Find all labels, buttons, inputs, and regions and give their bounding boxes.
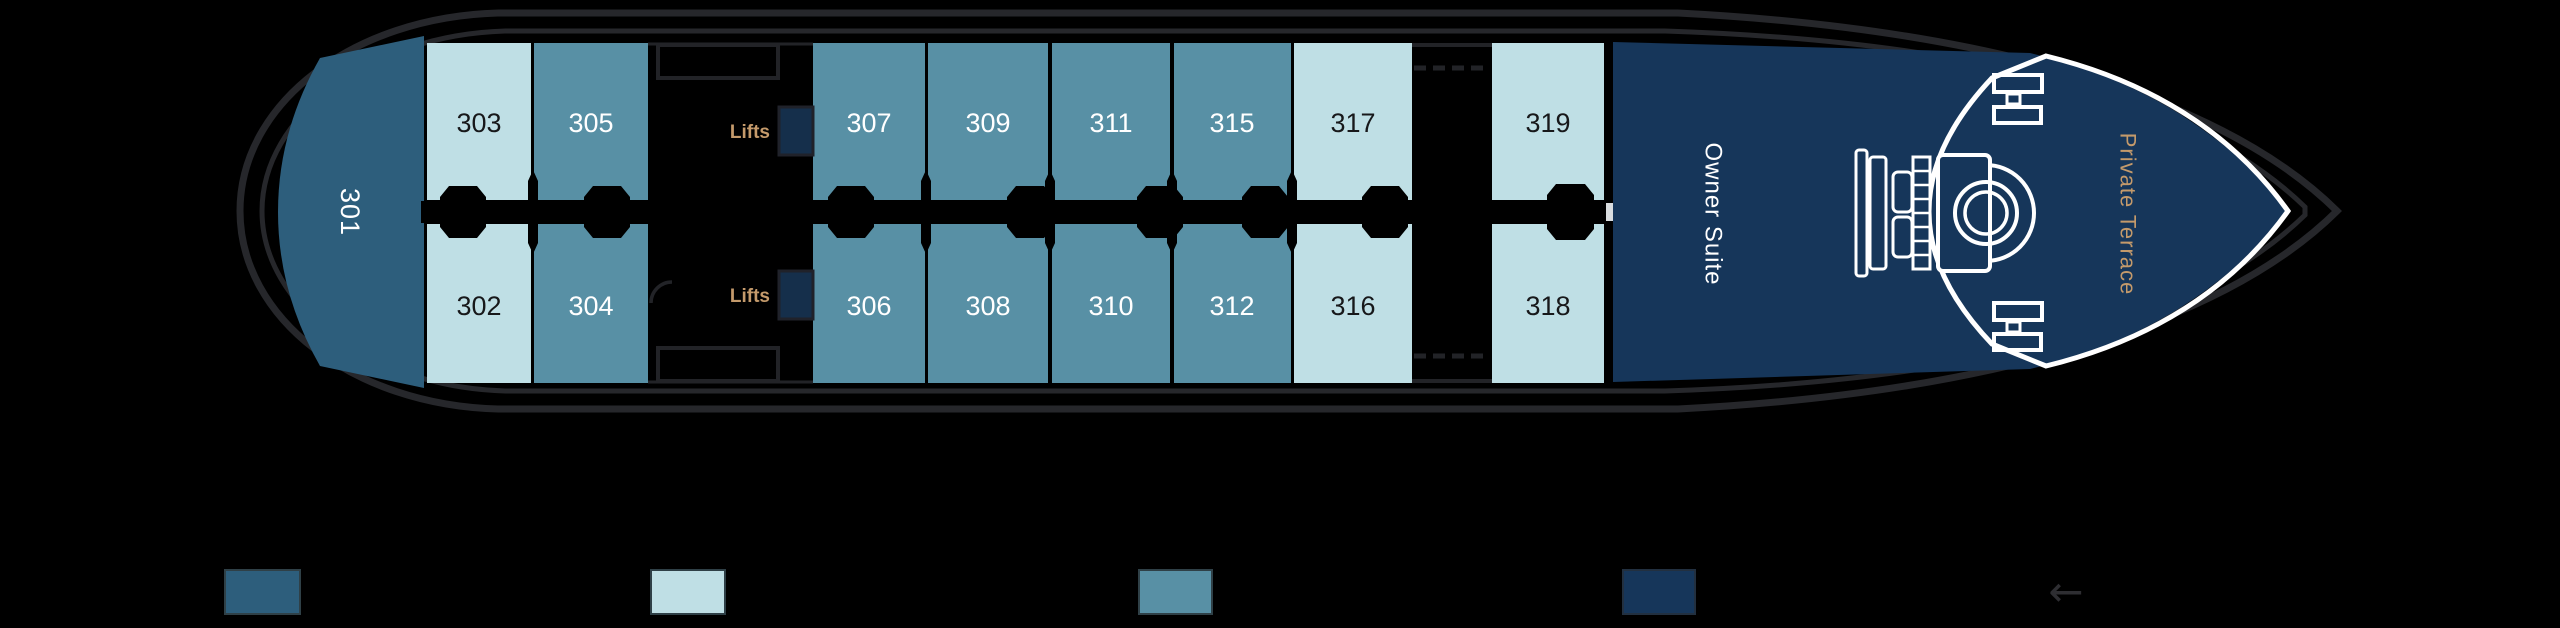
lift-icon-top [779,107,813,155]
cabin-316[interactable]: 316 [1294,224,1412,383]
cabin-315[interactable]: 315 [1174,43,1291,200]
owner-suite-label: Owner Suite [1700,142,1727,285]
legend-swatch-cabin-light [651,570,725,614]
cabin-number: 316 [1330,291,1375,321]
lifts-label-top: Lifts [730,122,770,143]
stair-lobby-door-notch [1547,184,1594,240]
cabin-304[interactable]: 304 [534,224,648,383]
cabin-317[interactable]: 317 [1294,43,1412,200]
cabin-number: 311 [1089,108,1132,138]
cabin-number: 310 [1088,291,1133,321]
cabin-311[interactable]: 311 [1052,43,1170,200]
legend-swatch-suite-navy [1623,570,1695,614]
cabin-302[interactable]: 302 [427,224,531,383]
cabins-bottom-row: 302 304 306 308 310 312 316 318 [427,224,1604,383]
cabin-number: 308 [965,291,1010,321]
legend-swatch-cabin-teal [1139,570,1212,614]
lift-lobby: Lifts Lifts [730,107,813,319]
cabin-318[interactable]: 318 [1492,224,1604,383]
lifts-label-bottom: Lifts [730,286,770,307]
cabin-301-door-notch [421,201,437,223]
cabin-308[interactable]: 308 [928,224,1048,383]
cabin-309[interactable]: 309 [928,43,1048,200]
private-terrace-label: Private Terrace [2116,133,2141,296]
cabin-305[interactable]: 305 [534,43,648,200]
door-swing-arc [651,282,672,303]
cabin-number: 306 [846,291,891,321]
cabin-number: 319 [1525,108,1570,138]
legend: ← [225,567,2084,616]
cabin-310[interactable]: 310 [1052,224,1170,383]
cabin-number: 312 [1209,291,1254,321]
carousel-left-arrow[interactable]: ← [2048,567,2083,616]
stairwell-outline-top [658,45,778,78]
owner-suite-door-marker [1606,203,1613,221]
cabin-306[interactable]: 306 [813,224,925,383]
stairwell-outline-bottom [658,348,778,381]
cabin-312[interactable]: 312 [1174,224,1291,383]
cabin-number: 307 [846,108,891,138]
cabin-number: 318 [1525,291,1570,321]
cabin-307[interactable]: 307 [813,43,925,200]
cabin-number: 302 [456,291,501,321]
cabin-number: 305 [568,108,613,138]
cabins-top-row: 303 305 307 309 311 315 317 319 [427,43,1604,200]
cabin-303[interactable]: 303 [427,43,531,200]
cabin-number: 309 [965,108,1010,138]
cabin-319[interactable]: 319 [1492,43,1604,200]
deck-plan-svg: 301 303 305 307 309 311 315 317 [0,0,2560,628]
legend-swatch-owner-suite-stern [225,570,300,614]
cabin-number: 317 [1330,108,1375,138]
cabin-number: 315 [1209,108,1254,138]
cabin-number: 304 [568,291,613,321]
deck-plan-screenshot: 301 303 305 307 309 311 315 317 [0,0,2560,628]
cabin-number: 303 [456,108,501,138]
lift-icon-bottom [779,271,813,319]
cabin-number: 301 [335,188,365,236]
